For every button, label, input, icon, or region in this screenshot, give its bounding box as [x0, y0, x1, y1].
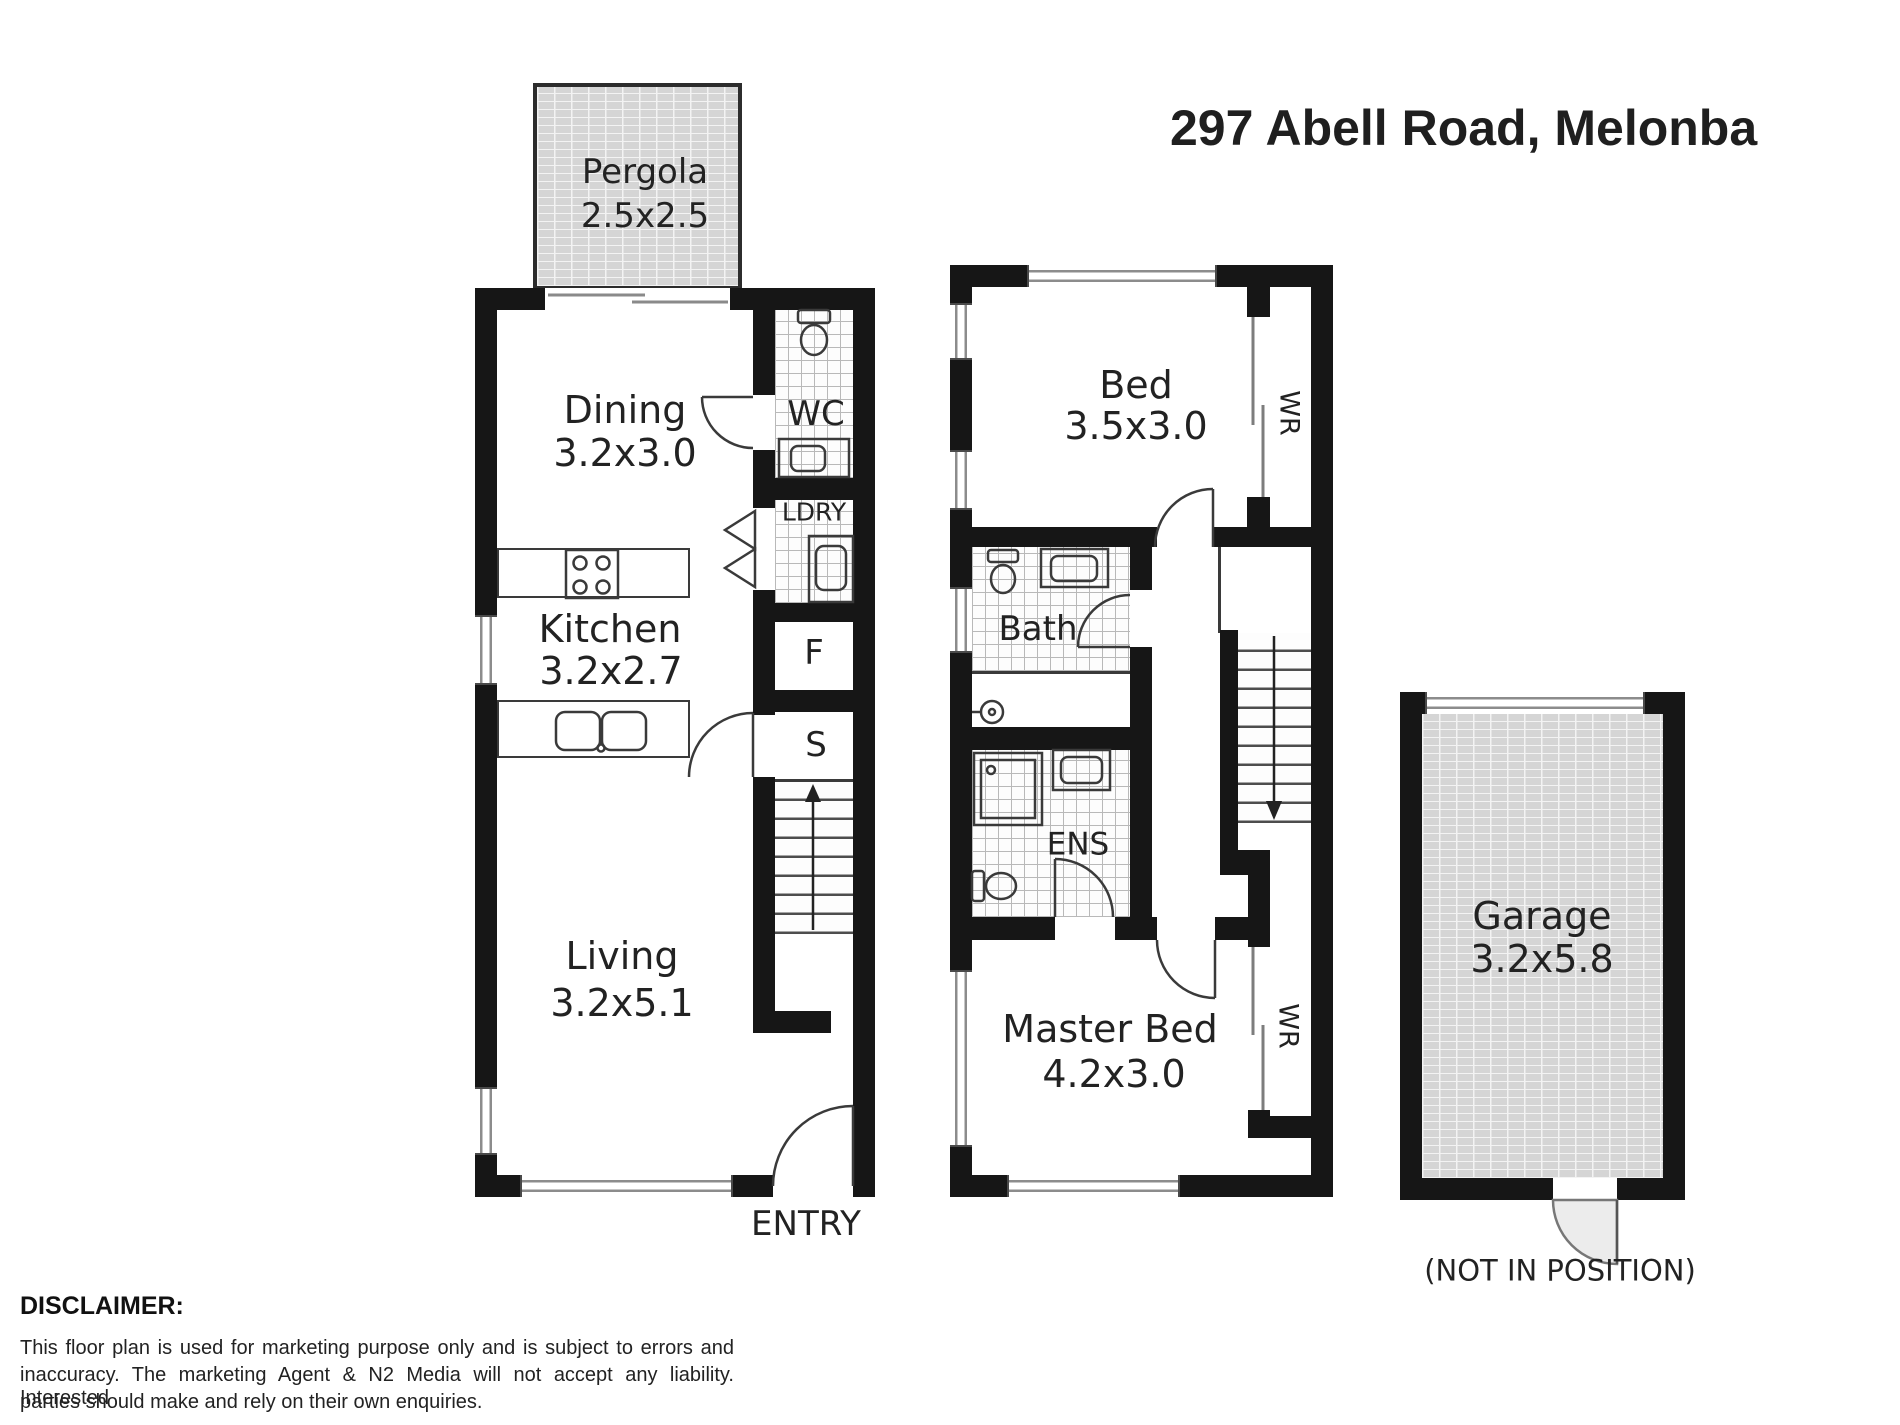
disclaimer-line-1: This floor plan is used for marketing pu… [20, 1337, 734, 1360]
wall-segment [1130, 750, 1152, 940]
wall-segment [1248, 1116, 1333, 1138]
ens-label: ENS [1047, 830, 1109, 861]
wall-segment [950, 727, 1152, 750]
pergola-dims: 2.5x2.5 [581, 199, 709, 233]
bed-top-window [1027, 265, 1217, 287]
wall-segment [1400, 692, 1422, 1200]
disclaimer-line-3: parties should make and rely on their ow… [20, 1391, 734, 1414]
wall-segment [775, 779, 853, 782]
wall-segment [1400, 1178, 1553, 1200]
bed-dims: 3.5x3.0 [1064, 407, 1207, 445]
bed-wr-sliding-icon [1253, 317, 1263, 497]
master-label: Master Bed [1002, 1010, 1217, 1048]
wall-segment [1115, 917, 1157, 940]
master-window [950, 970, 972, 1147]
wall-segment [475, 288, 497, 1197]
store-label: S [805, 728, 827, 762]
dining-dims: 3.2x3.0 [553, 434, 696, 472]
bed-window-2 [950, 450, 972, 510]
master-door-icon [1157, 940, 1215, 998]
page-title: 297 Abell Road, Melonba [1170, 99, 1757, 157]
wall-segment [1311, 265, 1333, 1197]
wall-segment [1663, 692, 1685, 1200]
entry-label: ENTRY [751, 1207, 861, 1241]
pergola-label: Pergola [582, 155, 708, 189]
shower-head-icon [972, 701, 1003, 723]
wall-segment [1248, 850, 1270, 947]
living-dims: 3.2x5.1 [550, 984, 693, 1022]
living-window [475, 1087, 497, 1155]
living-bottom-window [520, 1175, 733, 1197]
dining-label: Dining [564, 391, 687, 429]
master-dims: 4.2x3.0 [1042, 1055, 1185, 1093]
wall-segment [950, 527, 1157, 547]
wall-segment [972, 671, 1130, 674]
kitchen-window [475, 615, 497, 685]
wall-segment [1130, 547, 1152, 590]
kitchen-label: Kitchen [539, 610, 682, 648]
kitchen-bench-bottom [497, 700, 690, 758]
wall-segment [753, 603, 853, 622]
wc-door-icon [702, 397, 753, 448]
kitchen-bench-top [497, 548, 690, 598]
living-label: Living [566, 937, 679, 975]
bed-window-1 [950, 303, 972, 360]
garage-window [1425, 692, 1645, 714]
store-door-icon [689, 713, 753, 777]
bed-door-icon [1155, 489, 1213, 547]
wc-label: WC [787, 397, 844, 431]
wall-segment [950, 917, 1055, 940]
balustrade [1218, 547, 1221, 633]
floor-plan-page: { "title": "297 Abell Road, Melonba", "e… [0, 0, 1900, 1425]
garage-note: (NOT IN POSITION) [1424, 1257, 1696, 1286]
kitchen-dims: 3.2x2.7 [539, 652, 682, 690]
wall-segment [1215, 917, 1248, 940]
stairs-down [1238, 633, 1311, 823]
ldry-label: LDRY [782, 500, 846, 525]
wall-segment [853, 288, 875, 1197]
master-wr-label: WR [1275, 1003, 1302, 1048]
disclaimer-heading: DISCLAIMER: [20, 1292, 184, 1321]
wall-segment [1617, 1178, 1685, 1200]
wall-segment [1247, 287, 1270, 317]
wall-segment [1220, 630, 1238, 850]
garage-dims: 3.2x5.8 [1470, 940, 1613, 978]
wall-segment [753, 690, 853, 712]
ldry-bifold-door-icon [725, 511, 755, 587]
garage-label: Garage [1472, 897, 1611, 935]
master-bottom-window [1007, 1175, 1180, 1197]
bath-label: Bath [998, 612, 1077, 646]
wall-segment [1247, 497, 1270, 527]
wall-segment [753, 310, 775, 395]
wall-segment [753, 777, 775, 1033]
pergola-sliding-door [545, 288, 730, 310]
entry-door-icon [773, 1106, 853, 1186]
stairs-up [775, 782, 853, 935]
master-wr-sliding-icon [1253, 947, 1263, 1110]
fridge-label: F [804, 636, 824, 670]
bed-label: Bed [1099, 366, 1173, 404]
wall-segment [775, 1011, 831, 1033]
bed-wr-label: WR [1276, 390, 1303, 435]
wall-segment [1213, 527, 1333, 547]
entry-opening [773, 1175, 853, 1197]
bath-window [950, 587, 972, 653]
